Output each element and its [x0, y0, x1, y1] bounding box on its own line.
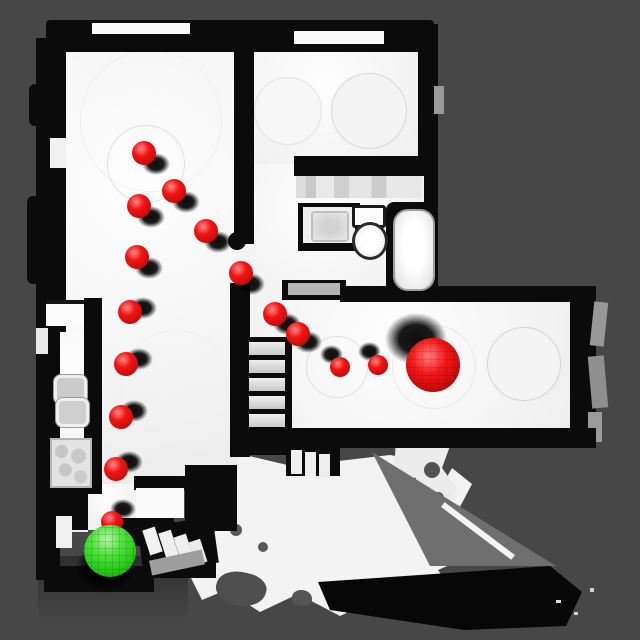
waypoint-marker: [263, 302, 287, 326]
waypoint-marker: [229, 261, 253, 285]
waypoint-marker: [125, 245, 149, 269]
waypoint-marker: [368, 355, 388, 375]
waypoint-marker: [104, 457, 128, 481]
waypoint-marker: [162, 179, 186, 203]
waypoint-marker: [127, 194, 151, 218]
goal-marker: [406, 338, 460, 392]
waypoint-marker: [114, 352, 138, 376]
waypoint-marker: [286, 322, 310, 346]
waypoint-marker: [132, 141, 156, 165]
markers-layer: [0, 0, 640, 640]
waypoint-marker: [330, 357, 350, 377]
start-marker: [84, 525, 136, 577]
floorplan-scene: [0, 0, 640, 640]
waypoint-marker: [118, 300, 142, 324]
waypoint-marker: [109, 405, 133, 429]
waypoint-marker: [194, 219, 218, 243]
